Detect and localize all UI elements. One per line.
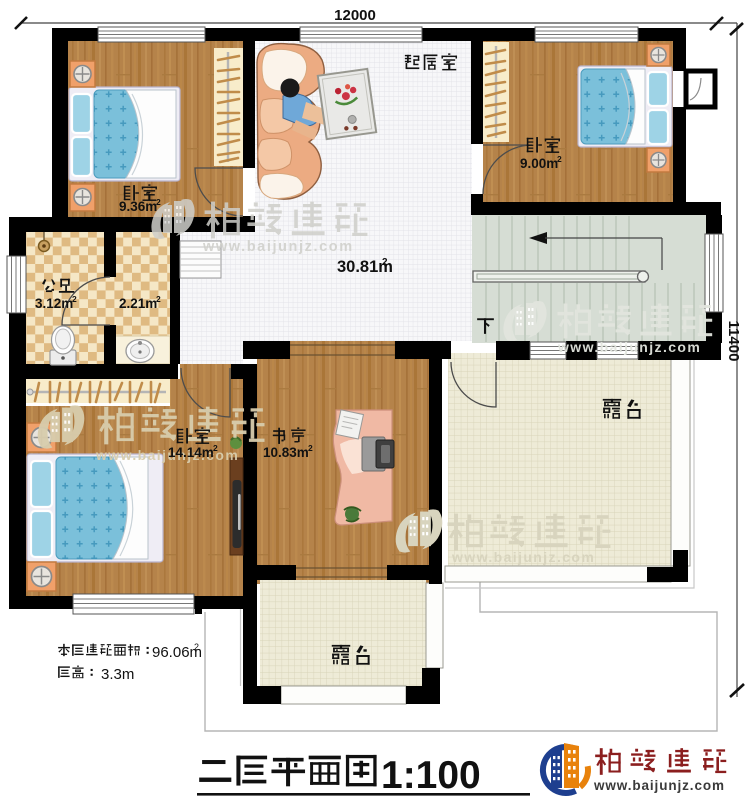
svg-text:www.baijunjz.com: www.baijunjz.com [202,239,354,255]
svg-text:14.14m: 14.14m [168,445,214,460]
svg-text:2: 2 [156,294,161,304]
svg-text:www.baijunjz.com: www.baijunjz.com [451,549,595,565]
svg-text:3.12m: 3.12m [35,296,73,311]
svg-text:2: 2 [213,443,218,453]
svg-text:9.36m: 9.36m [119,199,157,214]
svg-text:2: 2 [72,294,77,304]
svg-text:3.3m: 3.3m [101,666,134,683]
svg-text:1:100: 1:100 [381,754,481,797]
svg-text:www.baijunjz.com: www.baijunjz.com [557,339,701,355]
svg-text:www.baijunjz.com: www.baijunjz.com [593,778,725,793]
svg-text:2: 2 [308,443,313,453]
svg-text:9.00m: 9.00m [520,156,558,171]
svg-text:12000: 12000 [334,7,376,24]
svg-text:11400: 11400 [725,321,742,362]
svg-text:10.83m: 10.83m [263,445,309,460]
svg-text:2: 2 [194,642,199,652]
svg-text:2.21m: 2.21m [119,296,157,311]
svg-text:2: 2 [382,257,388,268]
svg-text:2: 2 [156,197,161,207]
svg-text:2: 2 [557,154,562,164]
